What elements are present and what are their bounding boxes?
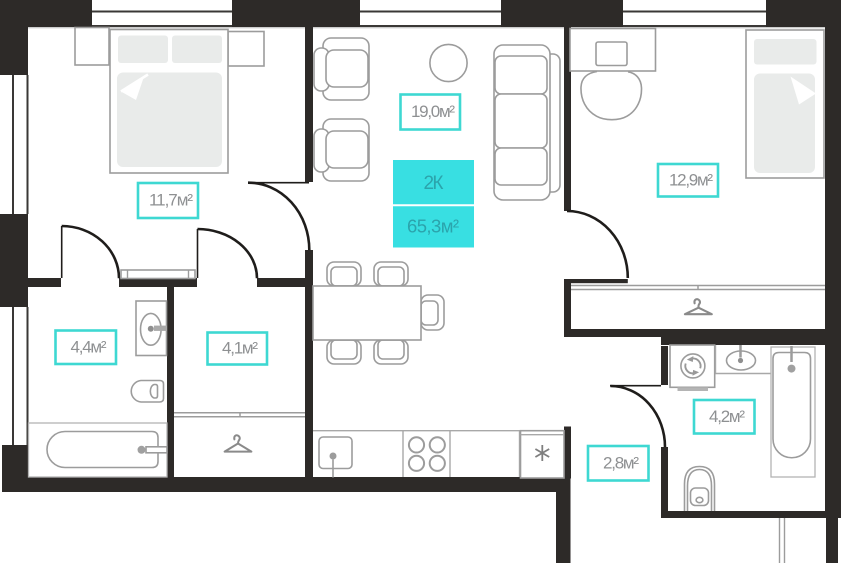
svg-text:4,2м²: 4,2м²	[709, 407, 745, 426]
svg-text:19,0м²: 19,0м²	[411, 102, 455, 121]
svg-text:2К: 2К	[424, 173, 444, 194]
svg-text:4,1м²: 4,1м²	[222, 339, 258, 358]
svg-text:12,9м²: 12,9м²	[669, 170, 713, 189]
svg-text:4,4м²: 4,4м²	[71, 337, 107, 356]
svg-text:2,8м²: 2,8м²	[603, 453, 639, 472]
svg-text:65,3м²: 65,3м²	[407, 216, 459, 237]
svg-text:11,7м²: 11,7м²	[149, 191, 193, 210]
